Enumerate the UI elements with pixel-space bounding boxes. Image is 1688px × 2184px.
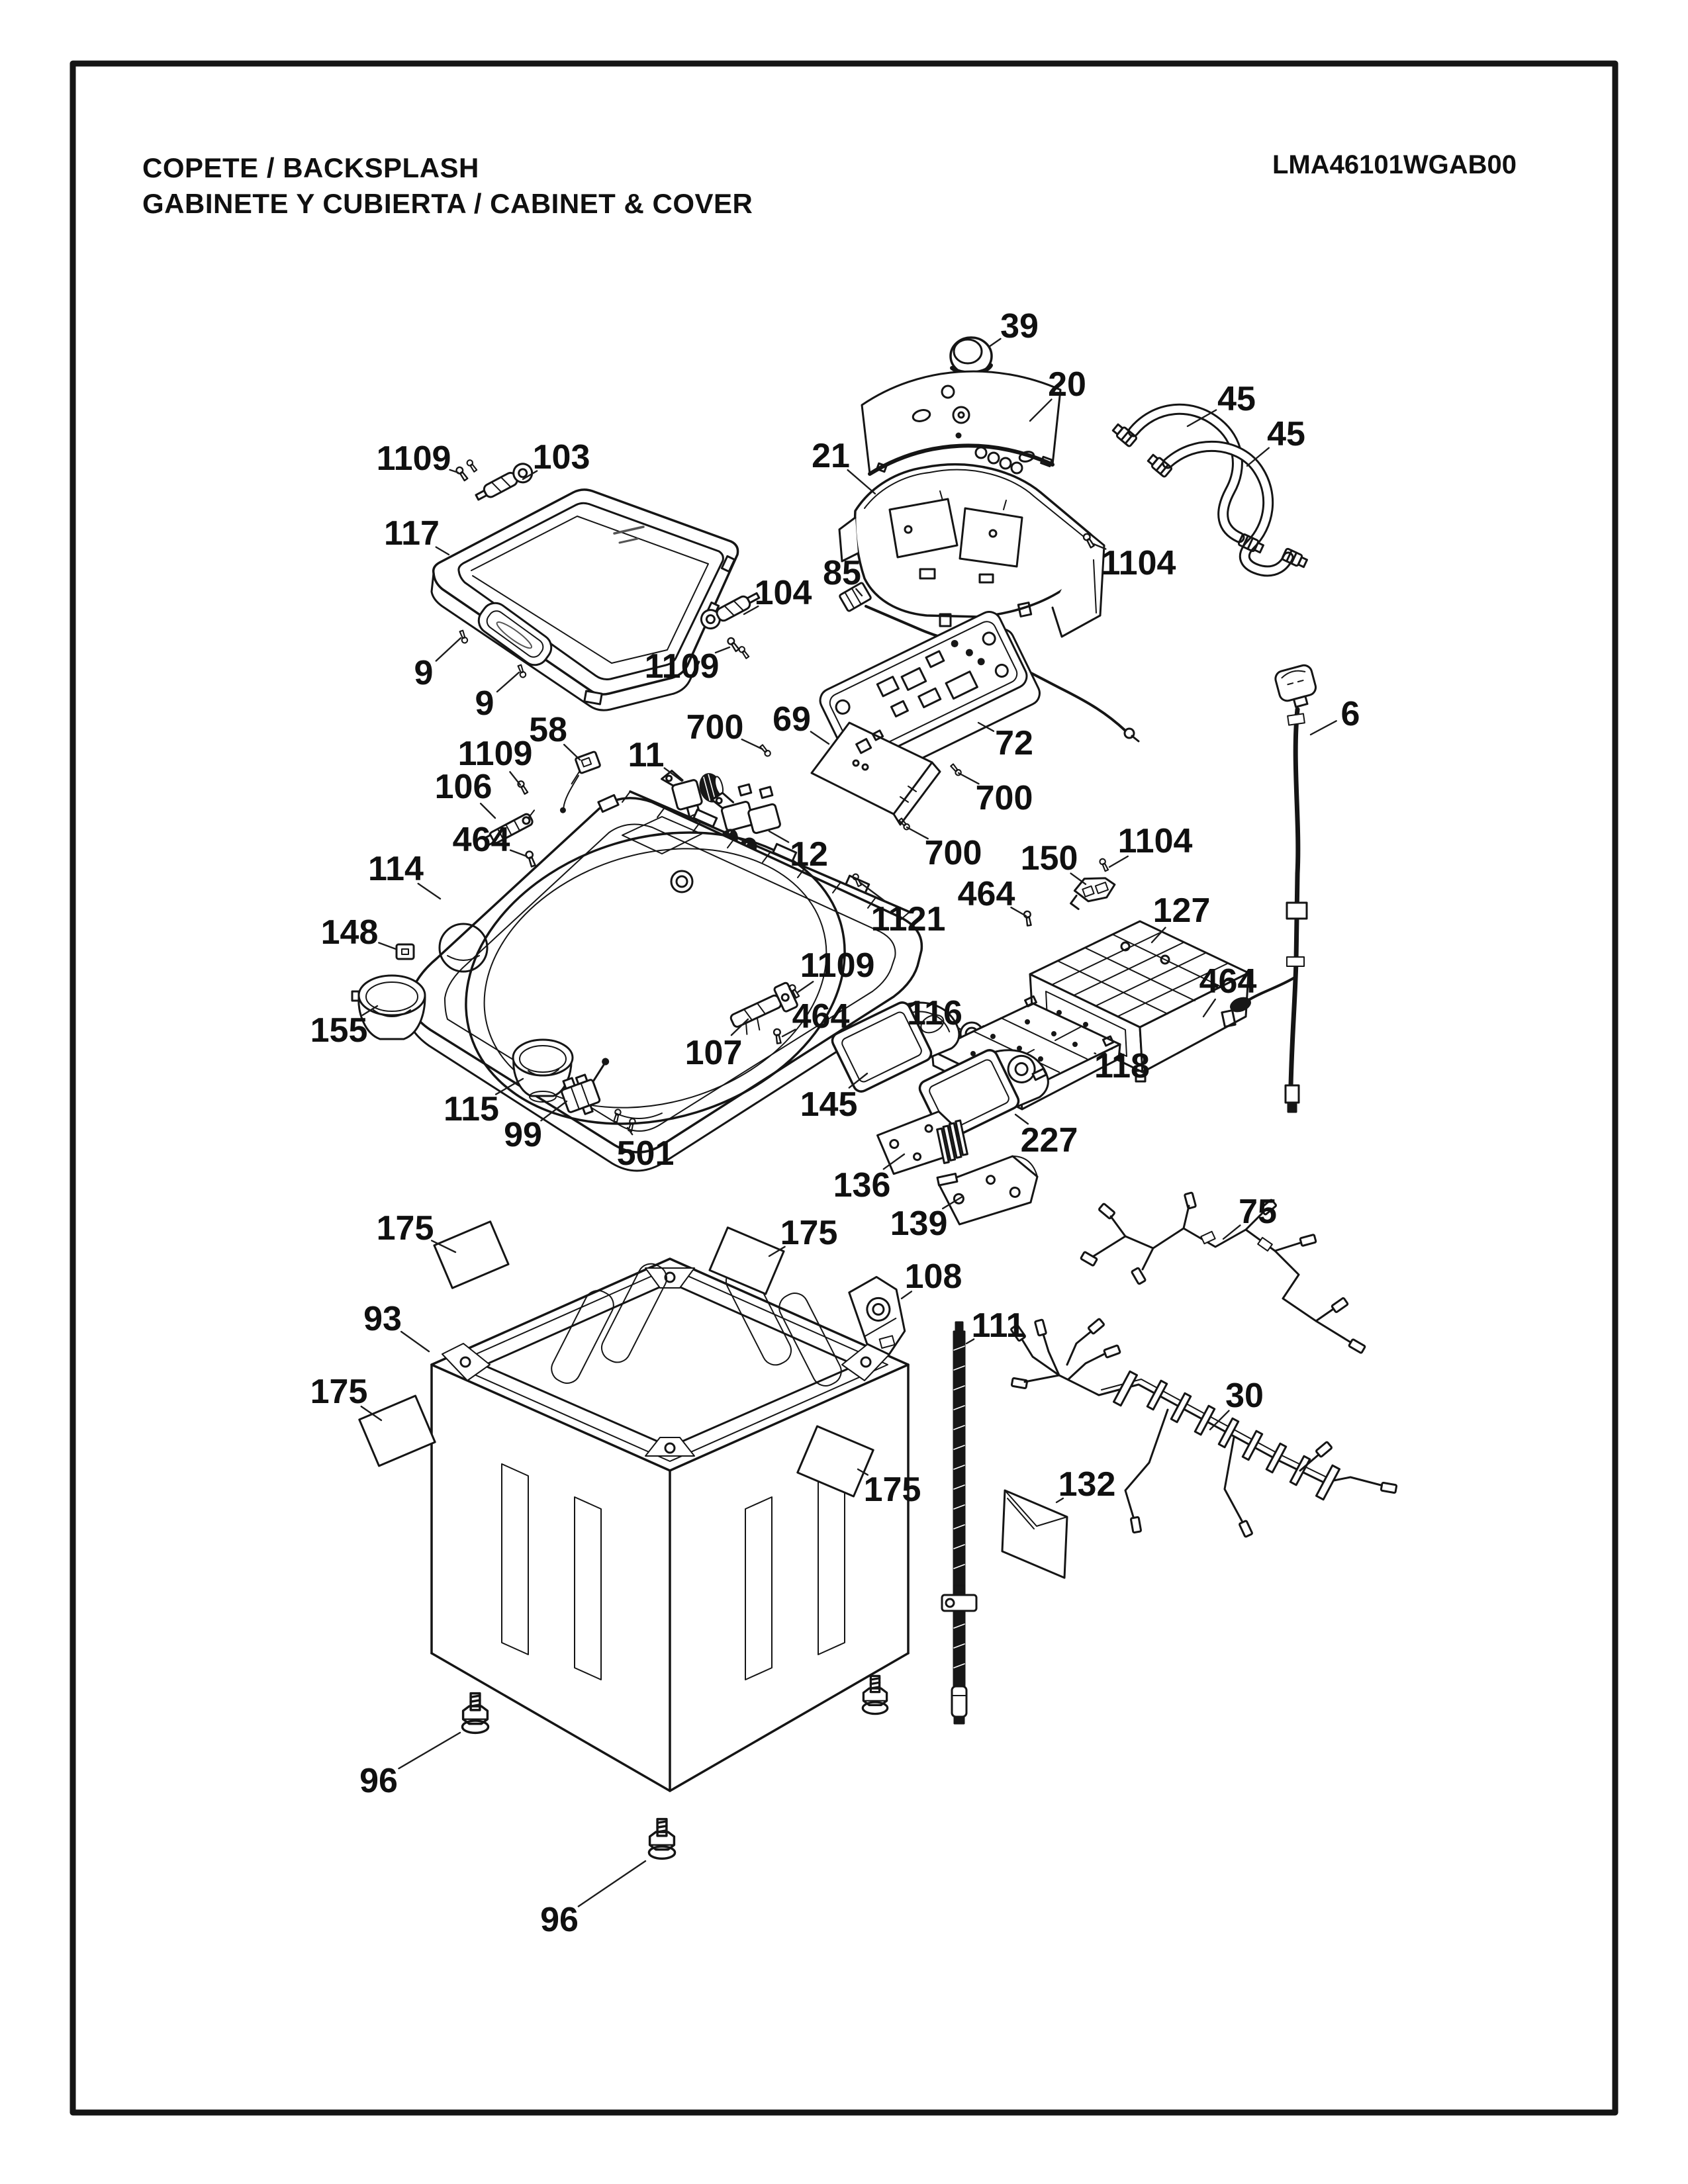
harness-75-drawing (1080, 1193, 1365, 1353)
hinge-103-drawing (455, 459, 536, 506)
part-label-175-46: 175 (377, 1209, 434, 1248)
page-title-line2: GABINETE Y CUBIERTA / CABINET & COVER (142, 188, 753, 219)
part-label-69-16: 69 (773, 700, 811, 739)
part-label-1104-13: 1104 (1102, 544, 1176, 582)
leader-line-1109-18 (510, 772, 520, 785)
parts-artwork (352, 338, 1397, 1858)
part-label-136-44: 136 (833, 1166, 891, 1205)
part-label-175-47: 175 (780, 1214, 838, 1252)
leader-line-148-32 (379, 942, 396, 949)
part-label-116-35: 116 (907, 994, 962, 1032)
damper-pad-175-a (434, 1222, 508, 1288)
leveling-foot-96-c (863, 1676, 887, 1713)
part-label-700-23: 700 (976, 779, 1033, 817)
bracket-139-drawing (936, 1152, 1043, 1227)
part-label-72-14: 72 (995, 724, 1033, 762)
screw-1104-b (1099, 858, 1109, 872)
part-label-464-21: 464 (453, 821, 510, 859)
part-label-148-32: 148 (321, 913, 379, 952)
part-label-9-11: 9 (475, 684, 494, 723)
leader-line-9-10 (436, 638, 461, 661)
part-label-96-58: 96 (540, 1901, 579, 1939)
part-label-1109-33: 1109 (800, 946, 875, 985)
control-panel-20-drawing (862, 371, 1060, 474)
harness-30-drawing (1011, 1318, 1397, 1537)
part-label-21-2: 21 (812, 437, 850, 475)
part-label-464-29: 464 (958, 875, 1015, 913)
screw-9-b (517, 664, 526, 678)
cabinet-93-drawing (432, 1259, 908, 1791)
part-label-115-40: 115 (444, 1090, 499, 1128)
leader-line-96-58 (579, 1861, 645, 1906)
part-label-6-55: 6 (1341, 695, 1360, 733)
part-label-45-4: 45 (1267, 415, 1305, 453)
leader-line-464-21 (510, 850, 527, 856)
part-label-132-56: 132 (1058, 1465, 1116, 1504)
part-label-75-48: 75 (1239, 1193, 1277, 1231)
part-label-99-42: 99 (504, 1116, 542, 1154)
part-label-1109-5: 1109 (377, 439, 451, 478)
part-label-1104-26: 1104 (1118, 822, 1193, 860)
part-label-118-38: 118 (1094, 1047, 1150, 1085)
leader-line-9-11 (497, 672, 519, 692)
part-label-39-0: 39 (1000, 307, 1039, 345)
part-label-12-22: 12 (790, 835, 828, 874)
knob-39-drawing (951, 338, 992, 375)
leader-line-69-16 (811, 732, 829, 744)
part-label-175-51: 175 (310, 1373, 368, 1411)
part-label-1109-9: 1109 (645, 647, 720, 686)
leader-line-700-15 (742, 739, 763, 749)
part-label-464-31: 464 (1199, 962, 1257, 1001)
literature-132-drawing (1002, 1490, 1067, 1578)
part-label-127-30: 127 (1153, 891, 1211, 930)
leveling-foot-96-b (649, 1819, 675, 1859)
screw-700-a (759, 744, 772, 757)
damper-pad-175-c (359, 1396, 435, 1466)
leveling-foot-96-a (462, 1694, 488, 1733)
parts-diagram-page: COPETE / BACKSPLASH GABINETE Y CUBIERTA … (0, 0, 1688, 2184)
part-label-117-7: 117 (384, 514, 440, 553)
nut-148-drawing (397, 944, 414, 959)
leader-line-12-22 (769, 831, 788, 842)
leader-line-96-57 (399, 1733, 460, 1768)
part-label-227-41: 227 (1021, 1121, 1078, 1160)
part-label-700-15: 700 (686, 708, 744, 747)
leader-line-93-49 (401, 1332, 429, 1351)
screw-9-a (459, 630, 468, 644)
part-label-30-53: 30 (1225, 1377, 1264, 1415)
part-label-155-36: 155 (310, 1011, 368, 1050)
model-number: LMA46101WGAB00 (1272, 150, 1517, 179)
part-label-175-54: 175 (864, 1471, 921, 1509)
damper-pad-175-d (798, 1426, 873, 1496)
part-label-145-39: 145 (800, 1085, 858, 1124)
screw-464-c (1023, 911, 1032, 926)
part-label-139-45: 139 (890, 1205, 948, 1243)
part-label-150-25: 150 (1021, 839, 1078, 878)
part-label-107-37: 107 (685, 1034, 743, 1072)
screw-464-a (525, 850, 536, 867)
part-label-114-27: 114 (368, 850, 424, 888)
part-label-11-19: 11 (628, 736, 665, 774)
part-label-108-50: 108 (905, 1257, 962, 1296)
rod-111-drawing (942, 1322, 976, 1723)
part-label-45-3: 45 (1217, 380, 1256, 418)
part-label-96-57: 96 (359, 1762, 398, 1800)
part-label-700-24: 700 (925, 834, 982, 872)
part-label-103-6: 103 (533, 438, 590, 477)
part-label-104-8: 104 (755, 574, 812, 612)
part-label-9-10: 9 (414, 654, 434, 692)
part-label-1121-28: 1121 (871, 900, 946, 938)
part-label-464-34: 464 (792, 997, 850, 1036)
leader-line-6-55 (1311, 721, 1336, 735)
part-label-58-17: 58 (529, 711, 567, 749)
part-label-501-43: 501 (617, 1134, 675, 1173)
leader-line-39-0 (989, 339, 1000, 347)
part-label-93-49: 93 (363, 1300, 402, 1338)
part-label-111-52: 111 (971, 1306, 1025, 1345)
part-label-85-12: 85 (823, 554, 861, 592)
page-title-line1: COPETE / BACKSPLASH (142, 152, 479, 183)
exploded-diagram: COPETE / BACKSPLASH GABINETE Y CUBIERTA … (0, 0, 1688, 2184)
part-label-106-20: 106 (435, 768, 492, 806)
part-label-20-1: 20 (1048, 365, 1086, 404)
power-cord-6-drawing (1229, 664, 1320, 1112)
